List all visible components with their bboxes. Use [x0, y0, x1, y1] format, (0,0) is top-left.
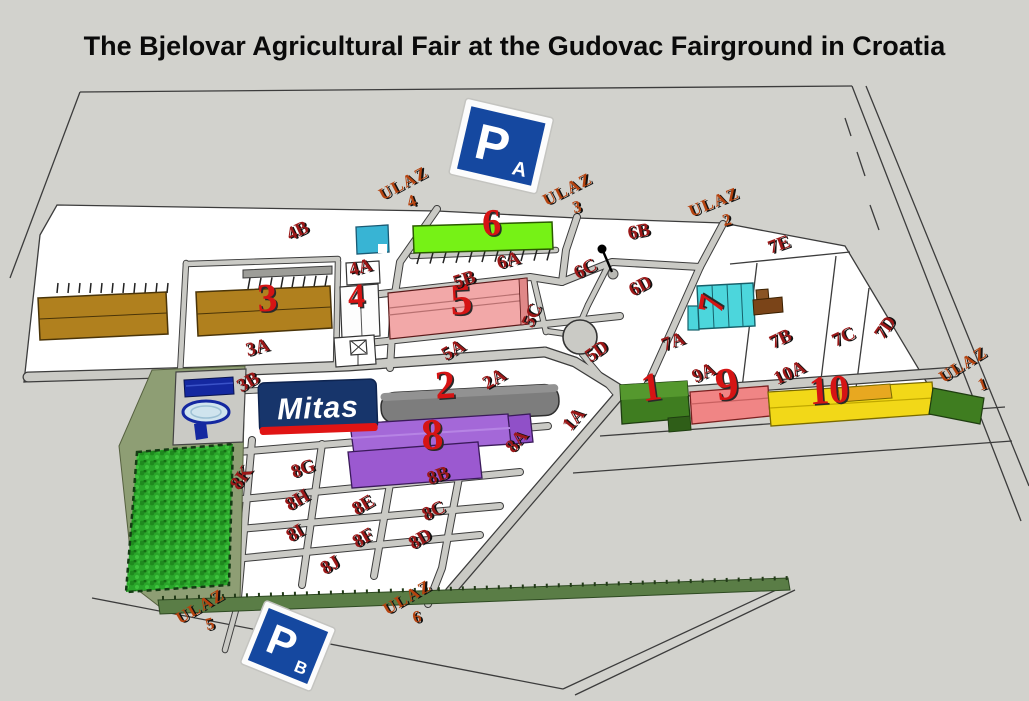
- building-number-8: 8: [420, 409, 445, 459]
- pool-building: [184, 377, 234, 397]
- pool: [183, 401, 229, 423]
- entrance-label-ulaz-3: ULAZ: [539, 169, 595, 210]
- parking-sign-b: P B: [240, 600, 336, 692]
- building-4-annex: [334, 335, 376, 367]
- entrance-label-ulaz-2: ULAZ: [686, 183, 742, 221]
- mitas-logo-text: Mitas: [277, 391, 360, 427]
- entrance-number-1: 1: [975, 373, 991, 394]
- mitas-logo: Mitas: [258, 379, 378, 435]
- building-number-4: 4: [347, 278, 366, 316]
- entrance-number-4: 4: [404, 190, 420, 211]
- forest-area: [126, 444, 233, 592]
- building-number-6: 6: [481, 202, 501, 245]
- building-number-2: 2: [434, 361, 457, 407]
- entrance-number-5: 5: [203, 613, 218, 634]
- building-10-green-end: [929, 388, 984, 424]
- fairground-map: 1 2 3 4 5 6 7 8 9 10 1A 2A 3A 3B 4A 4B 5…: [0, 0, 1029, 701]
- entrance-number-6: 6: [410, 606, 425, 627]
- outer-road-line: [866, 86, 1029, 486]
- building-number-3: 3: [256, 275, 278, 321]
- entrance-label-ulaz-4: ULAZ: [375, 162, 431, 204]
- building-cyan-notch: [378, 244, 387, 253]
- parking-sign-a: P A: [449, 98, 554, 194]
- entrance-number-3: 3: [570, 196, 585, 217]
- building-number-10: 10: [808, 366, 851, 414]
- pool-annex: [194, 422, 208, 440]
